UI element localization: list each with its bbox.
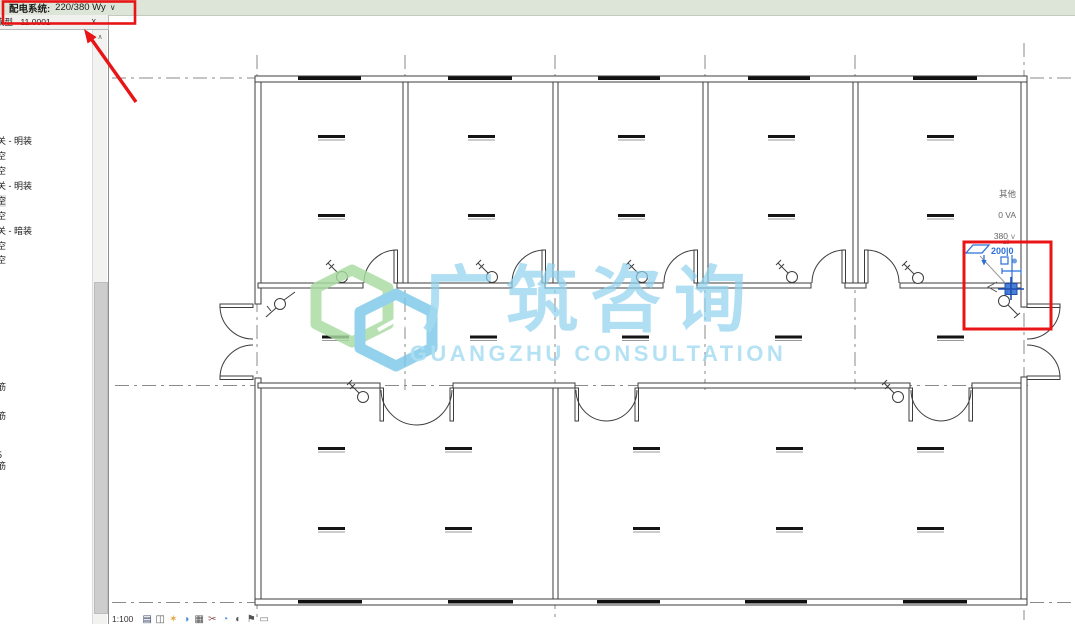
sidebar-item[interactable]: 空 [0, 150, 6, 162]
svg-text:0 VA: 0 VA [998, 210, 1016, 220]
chevron-down-icon[interactable]: ∨ [110, 3, 116, 12]
constraints-icon[interactable]: ⚑ [245, 614, 257, 625]
shadows-icon[interactable]: ◑ [180, 614, 192, 625]
sidebar-item-selected[interactable]: 空 [0, 195, 6, 207]
scrollbar-thumb[interactable] [94, 282, 108, 614]
selected-element[interactable]: ±3 200|0 [966, 240, 1024, 318]
temporary-hide-icon[interactable]: ◔ [219, 614, 231, 625]
rotate-handle-icon [966, 245, 989, 264]
sidebar-item[interactable]: 空 [0, 210, 6, 222]
worksets-icon[interactable]: ▭ [258, 614, 270, 625]
sidebar-item[interactable]: 关 - 明装 [0, 180, 32, 192]
sidebar-item[interactable]: 筋 [0, 460, 6, 472]
sidebar-item[interactable]: 筋 [0, 410, 6, 422]
drawing-canvas[interactable]: 广筑咨询 GUANGZHU CONSULTATION 其他 0 VA 380 V… [0, 0, 1075, 624]
sidebar-item[interactable]: 空 [0, 240, 6, 252]
dim-value: 200|0 [991, 246, 1014, 256]
sidebar-item[interactable]: 空 [0, 165, 6, 177]
crop-region-icon[interactable]: ✂ [206, 614, 218, 625]
sidebar-item[interactable]: 空 [0, 254, 6, 266]
visual-style-icon[interactable]: ◫ [154, 614, 166, 625]
sidebar-item[interactable]: 关 - 明装 [0, 135, 32, 147]
revit-app-window: { "options_bar": { "label": "配电系统:", "va… [0, 0, 1075, 624]
close-icon[interactable]: x [92, 16, 97, 26]
watermark-en: GUANGZHU CONSULTATION [410, 341, 787, 366]
switch-symbol [776, 260, 798, 283]
distribution-system-label: 配电系统: [9, 1, 50, 15]
svg-text:其他: 其他 [999, 189, 1017, 199]
crop-view-icon[interactable]: ▦ [193, 614, 205, 625]
reveal-hidden-icon[interactable]: ◐ [232, 614, 244, 625]
type-selector[interactable]: 模型 - 11.0001 x [0, 15, 109, 30]
switch-symbol-corridor [266, 292, 295, 317]
view-control-bar: 1:100 ▤ ◫ ✶ ◑ ▦ ✂ ◔ ◐ ⚑ ▭ [112, 614, 271, 624]
properties-sidebar: 关 - 明装 空 空 关 - 明装 空 空 关 - 暗装 空 空 筋 筋 5 筋… [0, 29, 109, 624]
options-bar: 配电系统: 220/380 Wy ∨ [0, 0, 1075, 16]
scroll-up-icon[interactable]: ∧ [93, 31, 107, 44]
watermark-cn: 广筑咨询 [422, 261, 758, 341]
sun-path-icon[interactable]: ✶ [167, 614, 179, 625]
detail-level-icon[interactable]: ▤ [141, 614, 153, 625]
sidebar-scrollbar[interactable]: ∧ [92, 29, 107, 624]
view-scale[interactable]: 1:100 [112, 614, 133, 624]
sidebar-item[interactable]: 筋 [0, 381, 6, 393]
sidebar-item[interactable]: 关 - 暗装 [0, 225, 32, 237]
flip-control-icon [1001, 257, 1017, 264]
watermark: 广筑咨询 GUANGZHU CONSULTATION [316, 261, 786, 366]
svg-text:V: V [1011, 235, 1015, 241]
doors-bottom-rooms[interactable] [380, 388, 973, 425]
type-selector-value[interactable]: 模型 - 11.0001 [0, 16, 51, 28]
circuit-tag: 其他 0 VA 380 V [994, 189, 1017, 241]
distribution-system-value[interactable]: 220/380 Wy [55, 2, 106, 13]
switch-symbol [902, 261, 924, 284]
selected-switch-symbol [999, 291, 1021, 318]
